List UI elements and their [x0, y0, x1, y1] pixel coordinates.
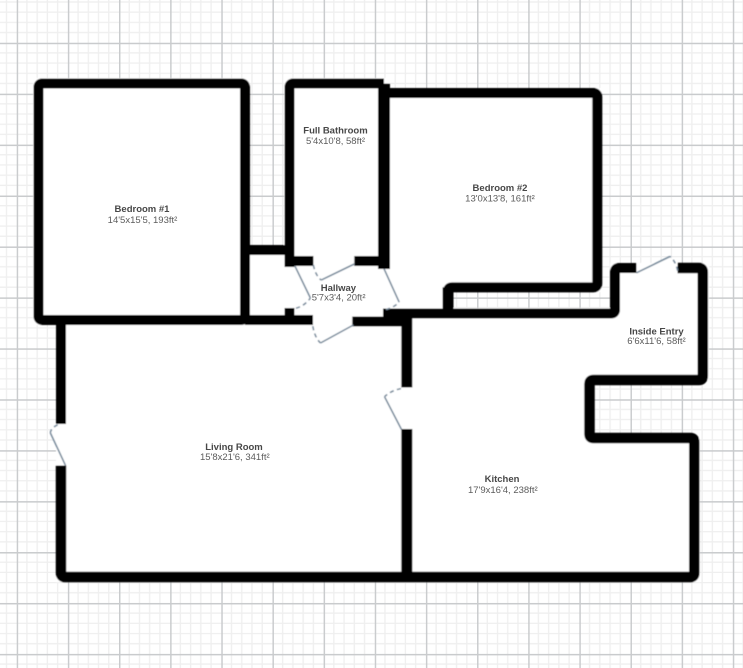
- svg-text:6'6x11'6, 58ft²: 6'6x11'6, 58ft²: [627, 336, 685, 347]
- svg-text:14'5x15'5, 193ft²: 14'5x15'5, 193ft²: [108, 215, 178, 226]
- svg-text:Bedroom #1: Bedroom #1: [115, 204, 171, 215]
- svg-text:Full Bathroom: Full Bathroom: [303, 126, 367, 137]
- svg-text:5'4x10'8, 58ft²: 5'4x10'8, 58ft²: [306, 136, 365, 147]
- svg-text:13'0x13'8, 161ft²: 13'0x13'8, 161ft²: [465, 194, 535, 205]
- svg-text:15'8x21'6, 341ft²: 15'8x21'6, 341ft²: [200, 452, 270, 463]
- svg-text:Kitchen: Kitchen: [485, 474, 520, 485]
- svg-text:5'7x3'4, 20ft²: 5'7x3'4, 20ft²: [312, 293, 366, 304]
- svg-text:Bedroom #2: Bedroom #2: [473, 183, 528, 194]
- svg-text:17'9x16'4, 238ft²: 17'9x16'4, 238ft²: [468, 485, 538, 496]
